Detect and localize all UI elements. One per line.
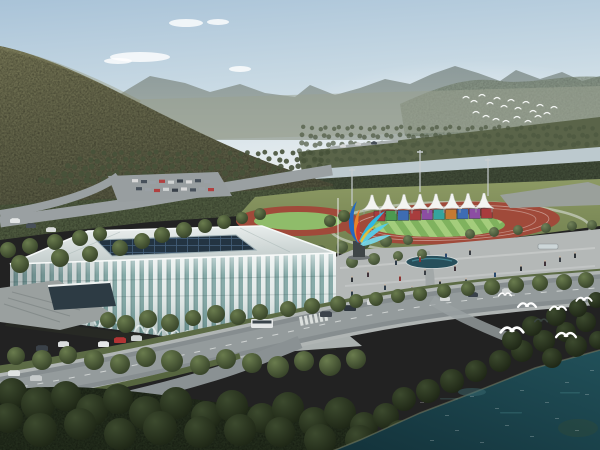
tree xyxy=(319,354,341,376)
tree xyxy=(417,249,427,259)
grandstand-block xyxy=(457,209,468,219)
cloud xyxy=(229,66,251,72)
tree xyxy=(567,221,577,231)
tree xyxy=(265,417,295,447)
tree xyxy=(136,347,156,367)
car xyxy=(114,338,126,343)
tree xyxy=(489,350,511,372)
tree xyxy=(541,223,551,233)
tree xyxy=(216,349,236,369)
tree xyxy=(556,274,572,290)
tree xyxy=(484,279,500,295)
scene-svg xyxy=(0,0,600,450)
car xyxy=(10,219,20,223)
parked-car xyxy=(159,180,165,183)
tree xyxy=(230,309,246,325)
car xyxy=(131,336,142,341)
tree xyxy=(465,360,487,382)
tree xyxy=(324,215,336,227)
tree xyxy=(112,240,128,256)
tree xyxy=(224,414,256,446)
tree xyxy=(117,315,135,333)
grandstand-block xyxy=(481,208,492,218)
rendering-stage xyxy=(0,0,600,450)
tree xyxy=(11,255,29,273)
tree xyxy=(22,238,38,254)
pedestrian xyxy=(520,267,522,272)
tree xyxy=(7,347,25,365)
tree xyxy=(103,384,133,414)
car xyxy=(30,376,42,381)
parked-car xyxy=(163,188,169,191)
bus xyxy=(251,319,273,328)
tree xyxy=(176,222,192,238)
grandstand-block xyxy=(434,210,445,220)
tree xyxy=(207,305,225,323)
parked-car xyxy=(181,187,187,190)
pedestrian xyxy=(574,254,576,259)
grandstand-block xyxy=(445,209,456,219)
cloud xyxy=(104,58,132,64)
tree xyxy=(47,234,63,250)
grandstand-block xyxy=(410,210,421,220)
tree xyxy=(104,418,136,450)
parked-car xyxy=(208,188,214,191)
tree xyxy=(304,298,320,314)
tree xyxy=(532,275,548,291)
tree xyxy=(369,292,383,306)
tree xyxy=(267,356,289,378)
tree xyxy=(32,350,52,370)
parked-car xyxy=(141,180,147,183)
tree xyxy=(59,346,77,364)
parked-car xyxy=(136,187,142,190)
tree xyxy=(100,312,116,328)
pedestrian xyxy=(384,286,386,291)
car xyxy=(46,228,56,232)
tree xyxy=(236,212,248,224)
tree xyxy=(508,277,524,293)
grandstand-block xyxy=(469,209,480,219)
tree xyxy=(51,249,69,267)
pedestrian xyxy=(424,271,426,276)
tree xyxy=(513,225,523,235)
tree xyxy=(330,296,346,312)
tree xyxy=(134,233,150,249)
tree xyxy=(578,272,594,288)
tree xyxy=(587,220,597,230)
tree xyxy=(143,411,177,445)
pedestrian xyxy=(544,262,546,267)
tree xyxy=(252,304,268,320)
tree xyxy=(23,413,57,447)
tree xyxy=(72,230,88,246)
tree xyxy=(154,227,170,243)
parked-car xyxy=(154,189,160,192)
tree xyxy=(368,253,380,265)
tree xyxy=(349,294,363,308)
tree xyxy=(413,287,427,301)
tree xyxy=(161,350,183,372)
pedestrian xyxy=(399,277,401,282)
pedestrian xyxy=(469,251,471,256)
pedestrian xyxy=(445,254,447,259)
tree xyxy=(502,330,522,350)
tree xyxy=(542,348,562,368)
pedestrian xyxy=(367,273,369,278)
tree xyxy=(403,235,413,245)
tree xyxy=(393,251,403,261)
car xyxy=(320,312,332,317)
tree xyxy=(254,208,266,220)
cloud xyxy=(169,19,203,27)
parked-car xyxy=(150,181,156,184)
tree xyxy=(416,379,440,403)
parked-car xyxy=(204,180,210,183)
tree xyxy=(217,215,231,229)
parked-car xyxy=(186,180,192,183)
tree xyxy=(82,246,98,262)
grandstand-block xyxy=(422,210,433,220)
parked-car xyxy=(190,188,196,191)
tree xyxy=(93,227,107,241)
tree xyxy=(338,210,350,222)
tree xyxy=(391,289,405,303)
tree xyxy=(184,416,216,448)
parked-car xyxy=(145,188,151,191)
plaza-pond xyxy=(406,256,458,269)
pedestrian xyxy=(395,261,397,266)
parked-car xyxy=(177,179,183,182)
tree xyxy=(437,284,451,298)
parked-car xyxy=(132,179,138,182)
tree xyxy=(185,310,201,326)
cloud xyxy=(207,19,229,25)
tree xyxy=(346,349,366,369)
tree xyxy=(589,331,600,349)
tree xyxy=(465,229,475,239)
car xyxy=(98,342,109,347)
tree xyxy=(546,306,566,326)
car xyxy=(8,371,20,376)
bus-shelter xyxy=(538,244,558,249)
tree xyxy=(139,310,157,328)
tree xyxy=(569,299,587,317)
tree xyxy=(64,408,96,440)
tree xyxy=(489,227,499,237)
tree xyxy=(242,353,262,373)
lake xyxy=(330,350,600,450)
car xyxy=(26,224,36,228)
parked-car xyxy=(195,179,201,182)
pedestrian xyxy=(454,267,456,272)
pedestrian xyxy=(494,273,496,278)
pedestrian xyxy=(351,278,353,283)
tree xyxy=(84,350,104,370)
pedestrian xyxy=(419,258,421,263)
grandstand-block xyxy=(386,211,397,221)
grandstand-block xyxy=(398,210,409,220)
pedestrian xyxy=(559,258,561,263)
tree xyxy=(190,355,210,375)
tree xyxy=(161,314,179,332)
tree xyxy=(110,354,130,374)
parked-car xyxy=(168,181,174,184)
tree xyxy=(440,369,464,393)
tree xyxy=(280,301,296,317)
tree xyxy=(294,351,314,371)
parked-car xyxy=(172,189,178,192)
parked-car xyxy=(199,187,205,190)
tree xyxy=(198,219,212,233)
tree xyxy=(461,282,475,296)
tree xyxy=(392,387,416,411)
tree xyxy=(0,242,16,258)
